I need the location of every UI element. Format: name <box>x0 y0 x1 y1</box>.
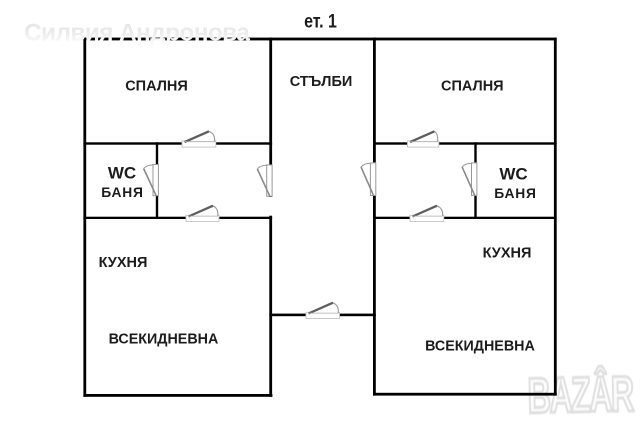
svg-text:БАНЯ: БАНЯ <box>494 186 536 201</box>
svg-text:WC: WC <box>499 165 527 184</box>
svg-text:КУХНЯ: КУХНЯ <box>483 246 532 262</box>
svg-text:ВСЕКИДНЕВНА: ВСЕКИДНЕВНА <box>425 339 535 355</box>
svg-text:СПАЛНЯ: СПАЛНЯ <box>125 79 188 95</box>
svg-text:СПАЛНЯ: СПАЛНЯ <box>441 79 504 95</box>
svg-text:СТЪЛБИ: СТЪЛБИ <box>290 74 353 90</box>
svg-text:Силвия Андронова: Силвия Андронова <box>24 19 250 46</box>
svg-text:БАНЯ: БАНЯ <box>101 185 143 200</box>
svg-text:КУХНЯ: КУХНЯ <box>99 255 148 271</box>
svg-text:ВСЕКИДНЕВНА: ВСЕКИДНЕВНА <box>109 332 219 348</box>
svg-text:ет. 1: ет. 1 <box>304 10 337 32</box>
svg-text:WC: WC <box>108 164 136 183</box>
